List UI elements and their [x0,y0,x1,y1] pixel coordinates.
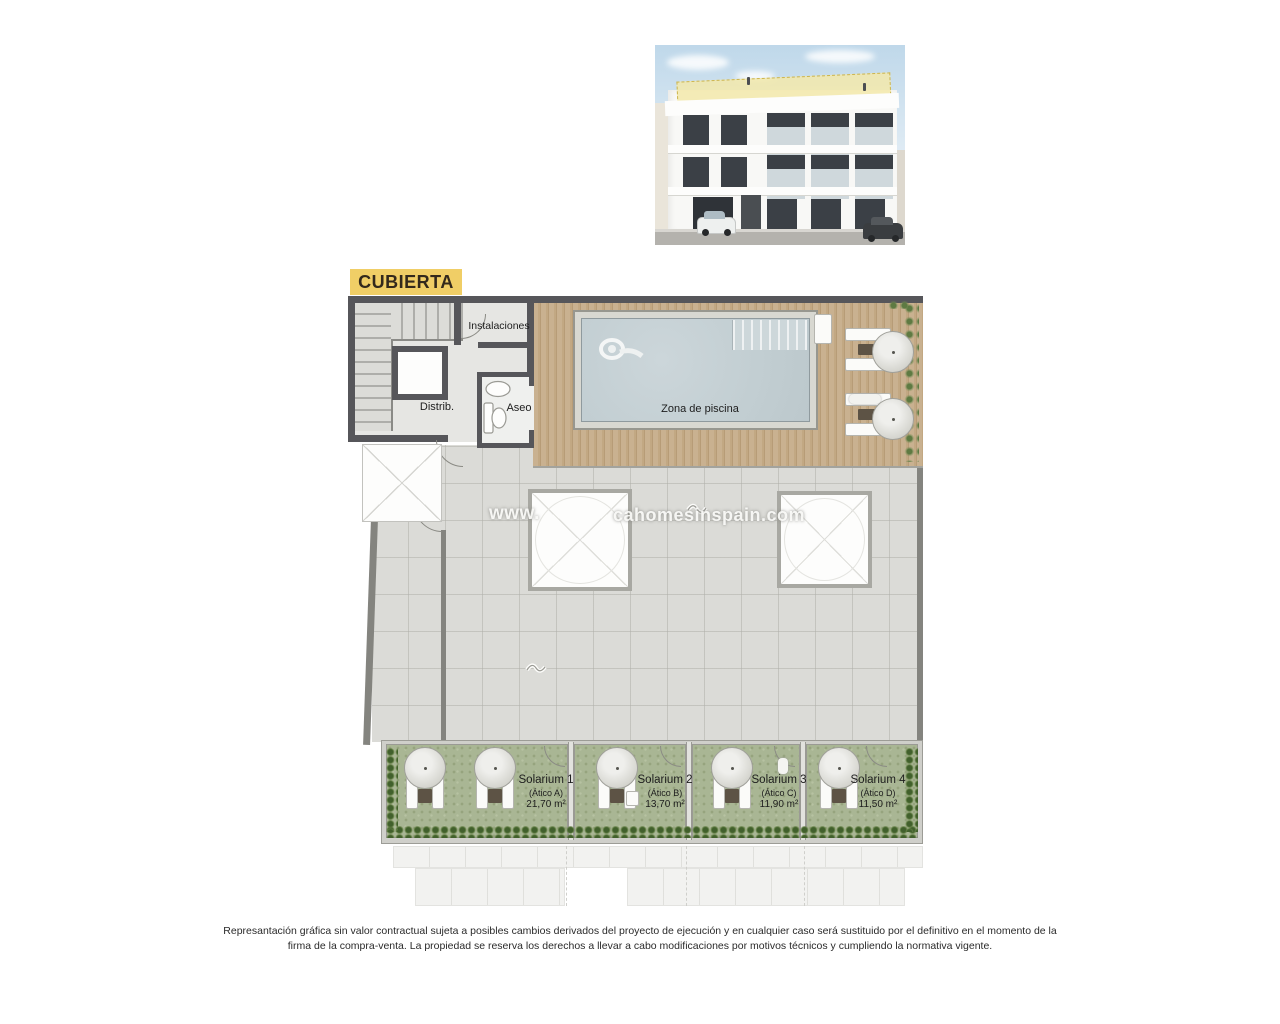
window [683,115,709,145]
car-wheel [724,229,731,236]
disclaimer: Represantación gráfica sin valor contrac… [190,924,1090,954]
wall [529,372,534,386]
seagull-icon [524,658,548,678]
pool-steps [732,320,807,350]
room-label-distrib: Distrib. [405,401,469,413]
sun-lounger-set [404,747,446,811]
solarium-unit: (Ático A) [508,788,584,799]
solarium-area: 13,70 m² [627,799,703,811]
wall [441,530,446,742]
plants [904,302,919,462]
solarium-2-label: Solarium 2 (Ático B) 13,70 m² [627,774,703,811]
entrance-door [741,195,761,230]
ghost-gridline [566,846,568,906]
wall [917,468,923,744]
pool-area-label: Zona de piscina [620,403,780,415]
solarium-1-label: Solarium 1 (Ático A) 21,70 m² [508,774,584,811]
car-wheel [892,235,899,242]
solarium-area: 11,50 m² [840,799,916,811]
floor-slab [668,145,897,154]
solarium-area: 21,70 m² [508,799,584,811]
person-figure [849,394,881,404]
cloud [805,50,875,63]
patio-void [362,444,442,522]
solarium-unit: (Ático B) [627,788,703,799]
parasol-icon [404,747,446,789]
wall [477,372,482,448]
solarium-area: 11,90 m² [741,799,817,811]
car-wheel [702,229,709,236]
wall [348,296,355,442]
sink-icon [484,380,512,398]
ghost-gridline [804,846,806,906]
lower-floor-ghost [393,846,923,868]
solarium-unit: (Ático C) [741,788,817,799]
solarium-3-label: Solarium 3 (Ático C) 11,90 m² [741,774,817,811]
white-car-roof [704,211,725,219]
car-wheel [868,235,875,242]
lower-floor-ghost [627,868,905,906]
window [721,157,747,187]
stairs-icon [355,303,393,431]
skylight-dome [535,496,625,584]
window [721,115,747,145]
solarium-name: Solarium 3 [741,774,817,788]
ghost-gridline [686,846,688,906]
lower-floor-ghost [415,868,565,906]
disclaimer-line-2: firma de la compra-venta. La propiedad s… [190,939,1090,954]
plants [386,826,918,838]
solarium-name: Solarium 2 [627,774,703,788]
wall [477,443,534,448]
roof-terrace [372,445,923,742]
lounger-icon [814,314,832,344]
disclaimer-line-1: Represantación gráfica sin valor contrac… [190,924,1090,939]
dark-car-roof [871,217,893,225]
plan-title-label: CUBIERTA [358,272,454,293]
floor-slab [668,187,897,196]
stairs-icon [391,303,463,341]
solarium-name: Solarium 1 [508,774,584,788]
wall [477,372,534,377]
watermark-prefix: www. [489,503,540,525]
wall [454,303,461,345]
floorplan-page: CUBIERTA www. cahomesinspain.com Zona de [0,0,1280,1024]
wall [348,296,534,303]
person-figure [778,758,788,774]
plan-title: CUBIERTA [350,269,462,295]
parasol-icon [872,331,914,373]
wall [527,296,534,376]
plants [888,299,908,309]
plants [386,748,398,832]
person-figure [863,83,866,91]
window [683,157,709,187]
cloud [667,55,729,70]
room-label-instalaciones: Instalaciones [462,320,536,332]
wall [348,435,448,442]
person-figure [747,77,750,85]
parasol-icon [872,398,914,440]
room-label-aseo: Aseo [498,402,540,414]
wall [529,430,534,448]
watermark-suffix: cahomesinspain.com [613,505,805,526]
swimmer-icon [598,336,646,366]
elevator [392,346,448,400]
wall [478,342,534,348]
solarium-name: Solarium 4 [840,774,916,788]
solarium-4-label: Solarium 4 (Ático D) 11,50 m² [840,774,916,811]
solarium-unit: (Ático D) [840,788,916,799]
building-render [655,45,905,245]
